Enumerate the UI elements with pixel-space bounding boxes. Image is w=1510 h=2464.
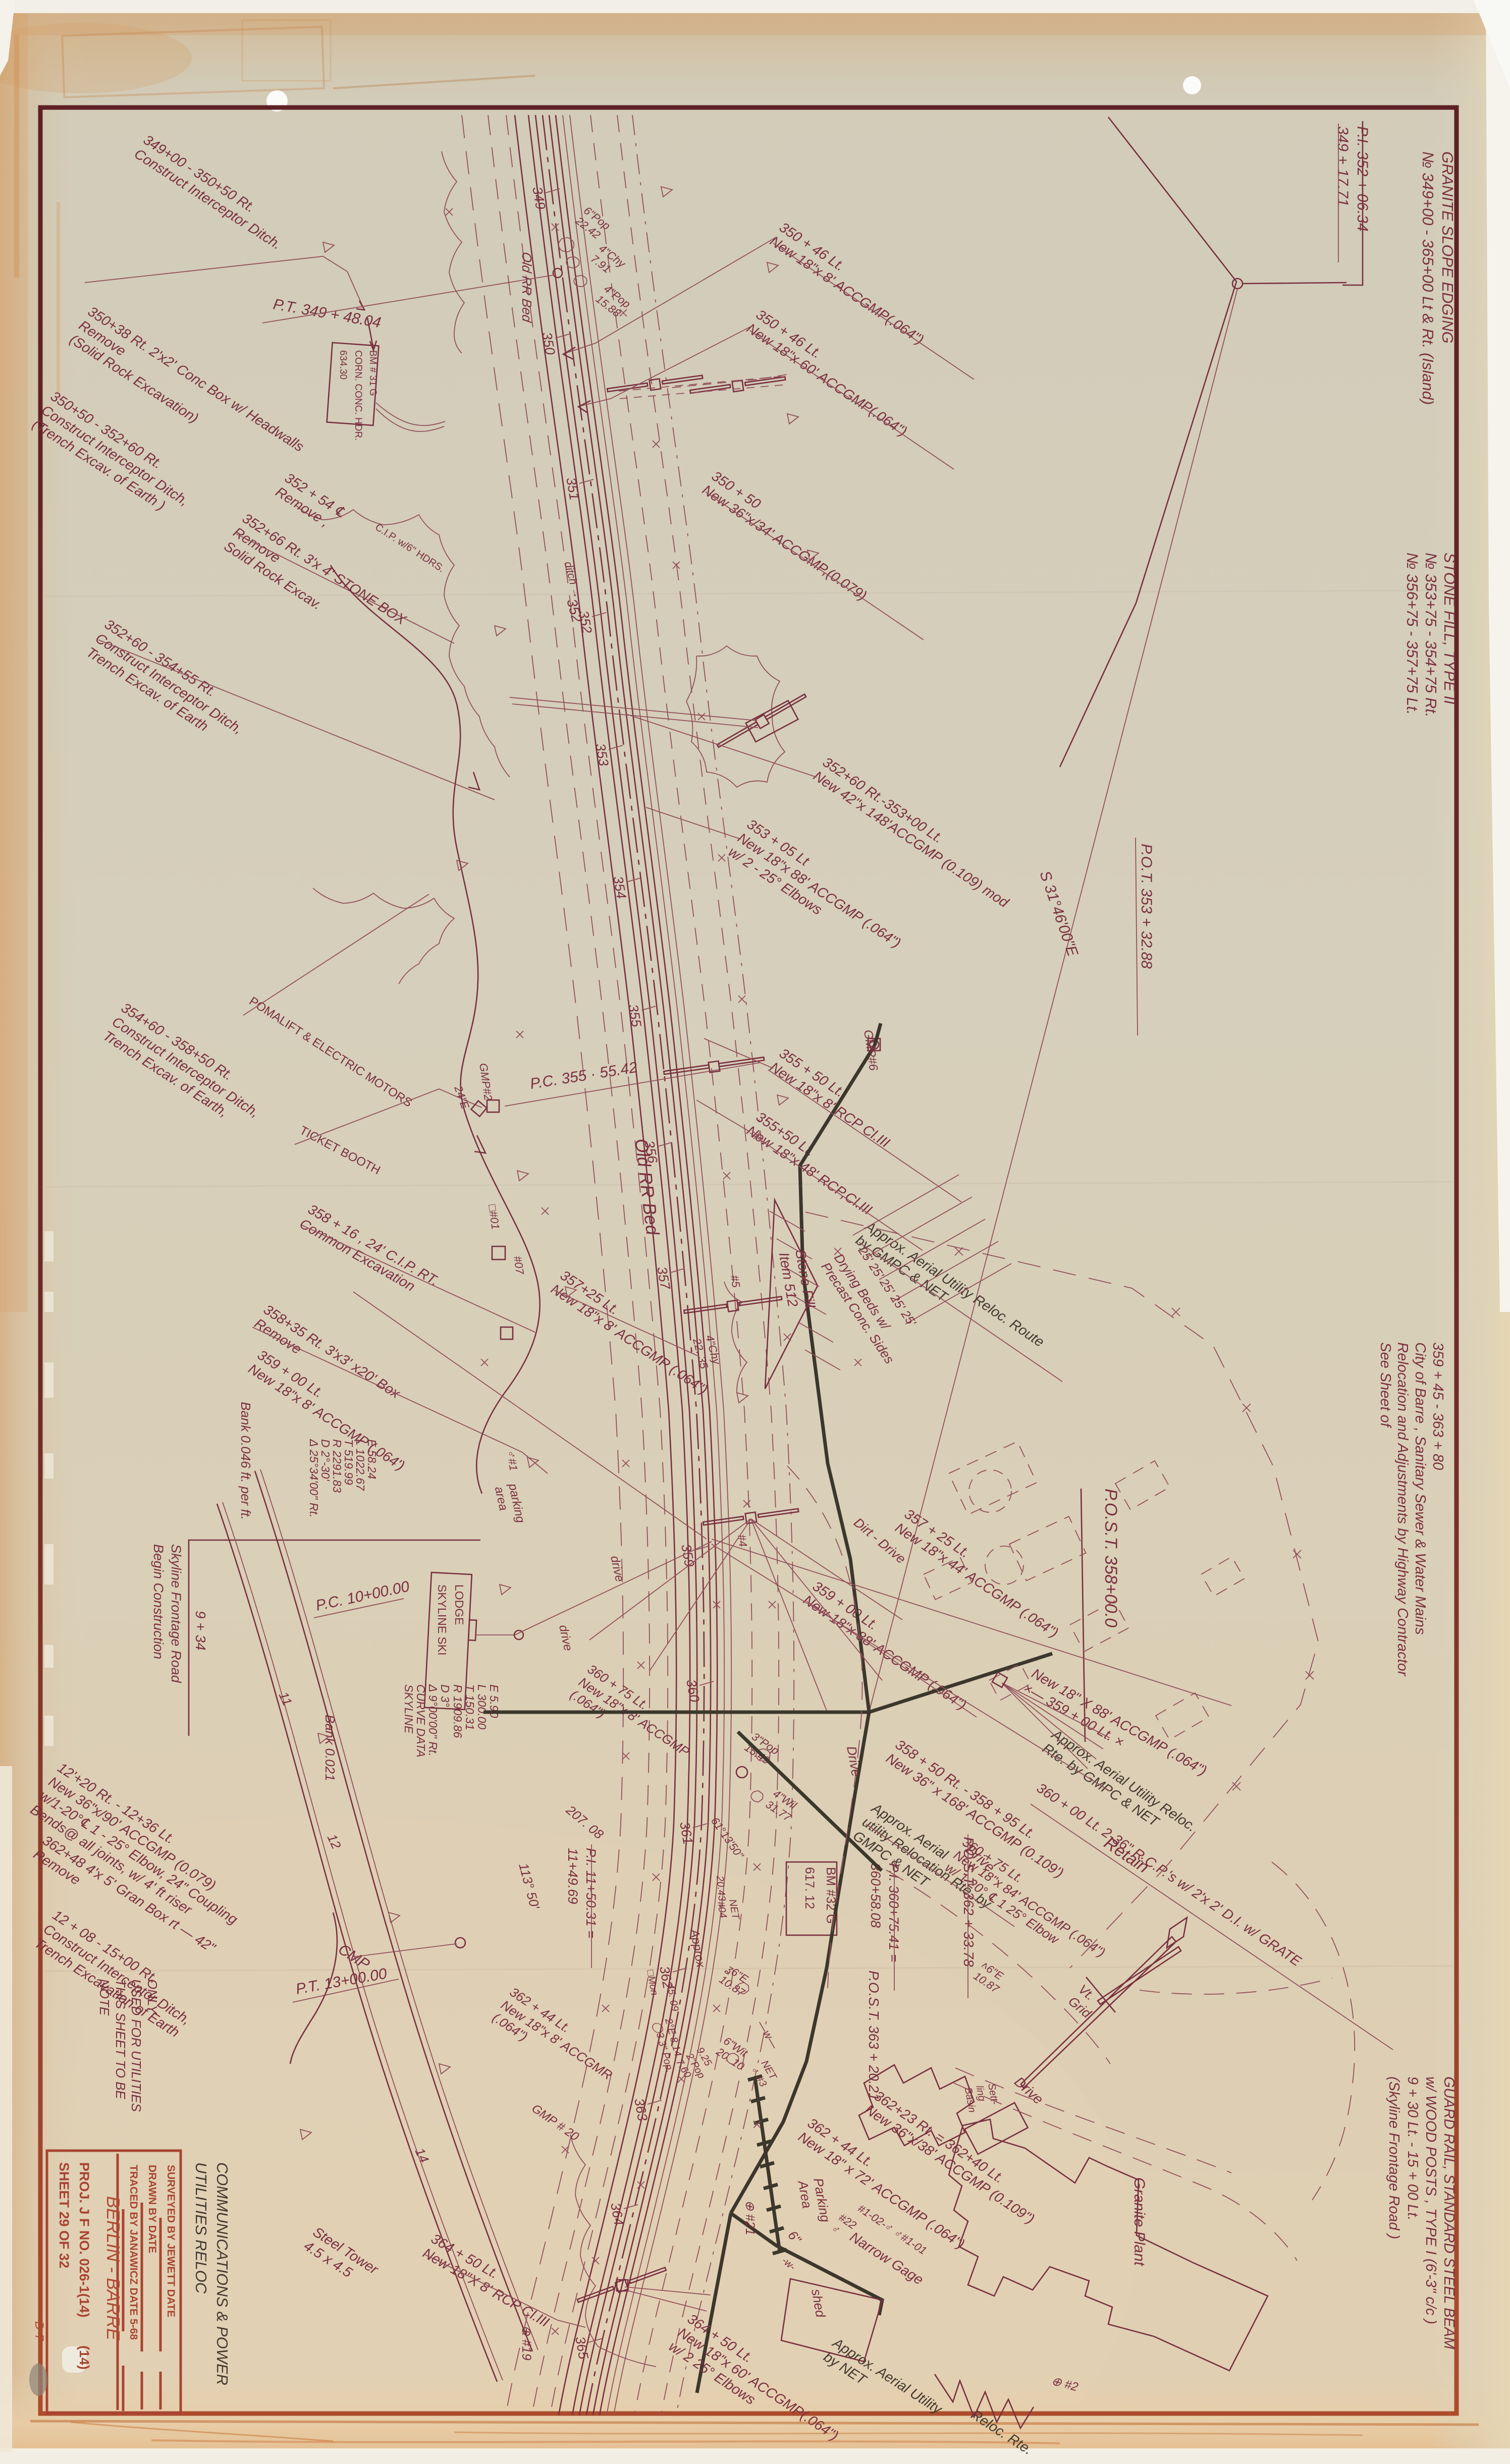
svg-text:SKYLINE SKI: SKYLINE SKI: [436, 1584, 449, 1656]
svg-text:CORN. CONC. HDR.: CORN. CONC. HDR.: [353, 350, 363, 441]
svg-text:D 2°-30': D 2°-30': [319, 1439, 332, 1482]
svg-text:COMMUNICATIONS & POWER: COMMUNICATIONS & POWER: [213, 2162, 231, 2385]
svg-text:#07: #07: [511, 1255, 526, 1276]
svg-text:D-7: D-7: [32, 2321, 46, 2341]
svg-text:GUARD RAIL, STANDARD STEEL: GUARD RAIL, STANDARD STEEL BEAM: [1441, 2076, 1457, 2349]
svg-text:BM # 31 G: BM # 31 G: [367, 350, 378, 396]
svg-text:⊕ #19: ⊕ #19: [519, 2325, 533, 2361]
svg-text:360+58.08: 360+58.08: [868, 1863, 883, 1928]
svg-text:TRACED BY JANAWICZ: TRACED BY JANAWICZ DATE 5-68: [128, 2165, 139, 2340]
svg-text:City of Barre , Sanitary Se: City of Barre , Sanitary Sewer & Water M…: [1412, 1342, 1428, 1635]
svg-text:GRANITE SLOPE EDGING: GRANITE SLOPE EDGING: [1439, 151, 1457, 344]
svg-text:Old RR Bed: Old RR Bed: [519, 251, 534, 324]
svg-text:T 519.99: T 519.99: [342, 1439, 355, 1485]
svg-text:P.O.S.T. 358+00.0: P.O.S.T. 358+00.0: [1101, 1489, 1120, 1627]
svg-text:Skyline Frontage Road: Skyline Frontage Road: [169, 1544, 184, 1683]
svg-text:R 2291.83: R 2291.83: [331, 1439, 344, 1493]
svg-text:#4: #4: [735, 1534, 749, 1548]
svg-text:Δ 9°00'00" Rt.: Δ 9°00'00" Rt.: [426, 1684, 440, 1756]
svg-text:Begin Construction: Begin Construction: [151, 1544, 166, 1659]
svg-text:#5: #5: [728, 1274, 742, 1288]
svg-text:USED FOR UTILITIES: USED FOR UTILITIES: [129, 1979, 144, 2112]
svg-text:634.30: 634.30: [338, 350, 348, 379]
svg-text:Relocation and Adjustments: Relocation and Adjustments by Highway Co…: [1394, 1342, 1411, 1677]
svg-text:Bank 0.046 ft. per ft.: Bank 0.046 ft. per ft.: [238, 1402, 253, 1520]
svg-text:L 1022.67: L 1022.67: [354, 1439, 367, 1491]
svg-text:⊕ #21: ⊕ #21: [743, 2200, 757, 2235]
svg-text:UTILITIES RELOC: UTILITIES RELOC: [192, 2162, 210, 2294]
svg-text:NOTE: NOTE: [97, 1979, 112, 2016]
svg-text:E 58.24: E 58.24: [365, 1439, 379, 1479]
svg-text:T 150.31: T 150.31: [463, 1684, 476, 1730]
svg-text:№ 349+00 - 365+00 Lt & Rt. (Is: № 349+00 - 365+00 Lt & Rt. (Island): [1419, 151, 1437, 405]
svg-text:(14): (14): [77, 2345, 92, 2370]
svg-text:№ 356+75 - 357+75 Lt.: № 356+75 - 357+75 Lt.: [1404, 553, 1421, 715]
svg-text:№ 353+75 - 354+75 Rt.: № 353+75 - 354+75 Rt.: [1422, 553, 1440, 718]
svg-text:359 + 45 - 363 + 80: 359 + 45 - 363 + 80: [1430, 1342, 1446, 1470]
svg-text:CURVE DATA: CURVE DATA: [414, 1684, 427, 1757]
svg-text:R 1909.86: R 1909.86: [451, 1684, 464, 1738]
svg-text:SHEET 29 OF 32: SHEET 29 OF 32: [57, 2162, 72, 2268]
svg-text:STONE FILL, TYPE II: STONE FILL, TYPE II: [1441, 553, 1459, 704]
svg-text:L 300.00: L 300.00: [475, 1684, 489, 1729]
svg-text:SURVEYED BY JEWETT: SURVEYED BY JEWETT DATE: [165, 2165, 177, 2317]
svg-text:See Sheet of: See Sheet of: [1377, 1342, 1393, 1429]
svg-text:LODGE: LODGE: [453, 1584, 466, 1625]
svg-text:PROJ. J F NO. 026-1(14): PROJ. J F NO. 026-1(14): [77, 2162, 92, 2318]
svg-text:11+49.69: 11+49.69: [565, 1848, 580, 1904]
svg-text:SKYLINE: SKYLINE: [402, 1684, 415, 1734]
svg-text:D 3°: D 3°: [439, 1684, 452, 1707]
svg-text:DRAWN BY: DRAWN BY DATE: [146, 2165, 158, 2253]
svg-text:(Skyline Frontage Road ): (Skyline Frontage Road ): [1386, 2076, 1402, 2239]
svg-text:BERLIN - BARRE: BERLIN - BARRE: [103, 2196, 124, 2341]
svg-text:9 + 34: 9 + 34: [193, 1611, 208, 1651]
svg-text:THIS SHEET TO BE: THIS SHEET TO BE: [113, 1979, 128, 2100]
svg-text:P.I. 11+50.31 =: P.I. 11+50.31 =: [583, 1848, 599, 1938]
svg-text:617. 12: 617. 12: [802, 1867, 817, 1909]
svg-text:Δ 25°34'00" Rt.: Δ 25°34'00" Rt.: [307, 1439, 320, 1517]
svg-text:w/ WOOD POSTS , TYPE I (6'-: w/ WOOD POSTS , TYPE I (6'-3" c/c ): [1423, 2076, 1439, 2324]
svg-text:349 + 17.71: 349 + 17.71: [1334, 126, 1351, 206]
svg-text:Granite Plant: Granite Plant: [1131, 2177, 1148, 2267]
svg-text:P.O.T. 353 + 32.88: P.O.T. 353 + 32.88: [1138, 844, 1155, 969]
svg-text:9 + 30 Lt. - 15 + 00 Lt.: 9 + 30 Lt. - 15 + 00 Lt.: [1405, 2076, 1421, 2220]
svg-text:ONLY: ONLY: [145, 1979, 160, 2014]
